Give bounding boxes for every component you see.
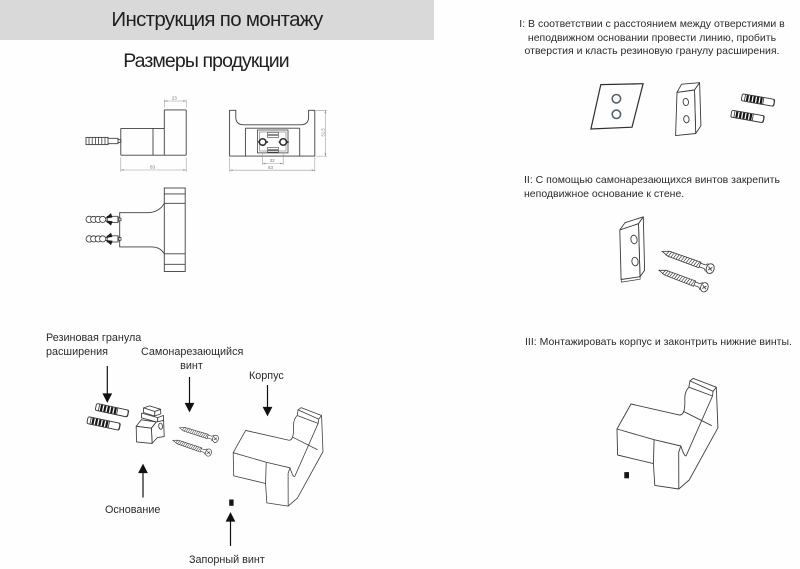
- svg-text:23: 23: [172, 95, 178, 100]
- svg-text:83: 83: [150, 165, 156, 170]
- svg-text:83: 83: [268, 165, 274, 170]
- svg-text:51.5: 51.5: [320, 128, 325, 137]
- svg-text:32: 32: [270, 158, 276, 163]
